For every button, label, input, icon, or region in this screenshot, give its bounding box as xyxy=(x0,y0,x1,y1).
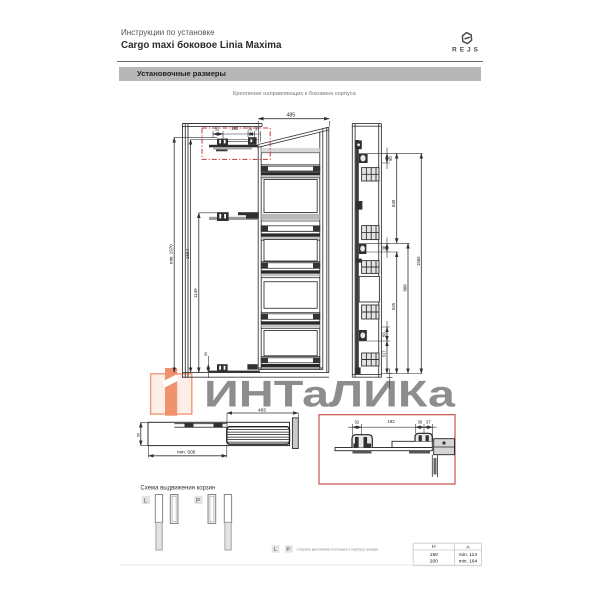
svg-text:L: L xyxy=(274,547,277,553)
svg-text:150: 150 xyxy=(430,552,438,558)
svg-text:1664: 1664 xyxy=(185,248,190,259)
svg-text:317: 317 xyxy=(382,350,387,358)
svg-text:525: 525 xyxy=(391,302,396,310)
svg-text:min. 505: min. 505 xyxy=(177,450,196,456)
svg-text:37: 37 xyxy=(255,126,260,131)
svg-text:1565: 1565 xyxy=(416,256,421,266)
svg-text:30: 30 xyxy=(248,126,253,131)
svg-text:30: 30 xyxy=(418,419,423,424)
svg-text:сторона крепления полозьев к к: сторона крепления полозьев к корпусу шка… xyxy=(297,548,380,552)
svg-text:90: 90 xyxy=(388,156,393,161)
svg-text:485: 485 xyxy=(287,113,296,119)
svg-text:32: 32 xyxy=(215,126,220,131)
svg-text:50: 50 xyxy=(382,332,387,337)
svg-text:192: 192 xyxy=(388,419,396,424)
svg-text:H: H xyxy=(432,544,436,550)
svg-text:200: 200 xyxy=(430,558,438,564)
svg-text:50: 50 xyxy=(204,352,208,356)
svg-text:min. 114: min. 114 xyxy=(459,552,477,558)
svg-text:1149: 1149 xyxy=(193,288,198,298)
svg-text:P: P xyxy=(286,547,290,553)
svg-text:192: 192 xyxy=(231,126,239,131)
svg-text:min. 164: min. 164 xyxy=(459,558,478,564)
svg-text:ИНТаЛИКа: ИНТаЛИКа xyxy=(204,374,456,415)
svg-text:min. 1970: min. 1970 xyxy=(169,244,174,264)
svg-text:50: 50 xyxy=(136,433,140,437)
svg-text:465: 465 xyxy=(258,407,266,413)
svg-text:30: 30 xyxy=(382,245,387,250)
svg-text:Схема выдвижения корзин: Схема выдвижения корзин xyxy=(140,486,215,492)
svg-text:840: 840 xyxy=(391,199,396,207)
svg-text:808: 808 xyxy=(403,284,408,292)
svg-text:P: P xyxy=(196,498,200,504)
svg-text:A: A xyxy=(466,544,470,550)
svg-text:37: 37 xyxy=(426,419,431,424)
svg-text:32: 32 xyxy=(355,419,360,424)
